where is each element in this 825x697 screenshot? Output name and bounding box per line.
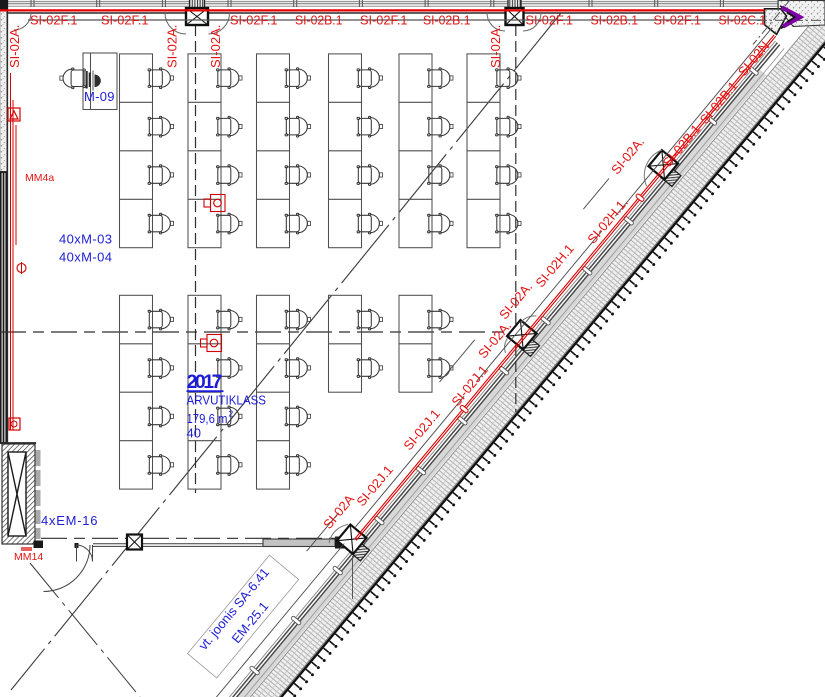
svg-text:SI-02C.1: SI-02C.1 xyxy=(719,13,767,28)
svg-text:40xM-03: 40xM-03 xyxy=(59,232,112,247)
svg-text:SI-02F.1: SI-02F.1 xyxy=(101,13,149,28)
svg-text:SI-02A.: SI-02A. xyxy=(208,25,223,68)
svg-text:SI-02F.1: SI-02F.1 xyxy=(30,13,78,28)
svg-text:SI-02F.1: SI-02F.1 xyxy=(526,13,574,28)
svg-text:SI-02F.1: SI-02F.1 xyxy=(230,13,278,28)
svg-text:SI-02A.: SI-02A. xyxy=(7,25,22,68)
svg-text:SI-02F.1: SI-02F.1 xyxy=(360,13,408,28)
svg-text:SI-02A.: SI-02A. xyxy=(165,25,180,68)
svg-text:40xM-04: 40xM-04 xyxy=(59,250,112,265)
svg-text:SI-02F.1: SI-02F.1 xyxy=(654,13,702,28)
svg-text:MM14: MM14 xyxy=(14,551,43,563)
svg-text:SI-02B.1: SI-02B.1 xyxy=(295,13,343,28)
svg-text:179,6 m: 179,6 m xyxy=(187,411,228,426)
svg-text:2017: 2017 xyxy=(187,371,223,393)
svg-text:MM4a: MM4a xyxy=(25,172,54,184)
svg-text:SI-02B.1: SI-02B.1 xyxy=(423,13,471,28)
svg-text:40: 40 xyxy=(187,426,201,441)
svg-text:2: 2 xyxy=(229,409,234,419)
svg-text:SI-02A.: SI-02A. xyxy=(488,25,503,68)
svg-text:ARVUTIKLASS: ARVUTIKLASS xyxy=(187,393,267,408)
svg-text:4xEM-16: 4xEM-16 xyxy=(41,513,98,528)
svg-text:M-09: M-09 xyxy=(84,89,115,104)
svg-text:SI-02B.1: SI-02B.1 xyxy=(591,13,639,28)
